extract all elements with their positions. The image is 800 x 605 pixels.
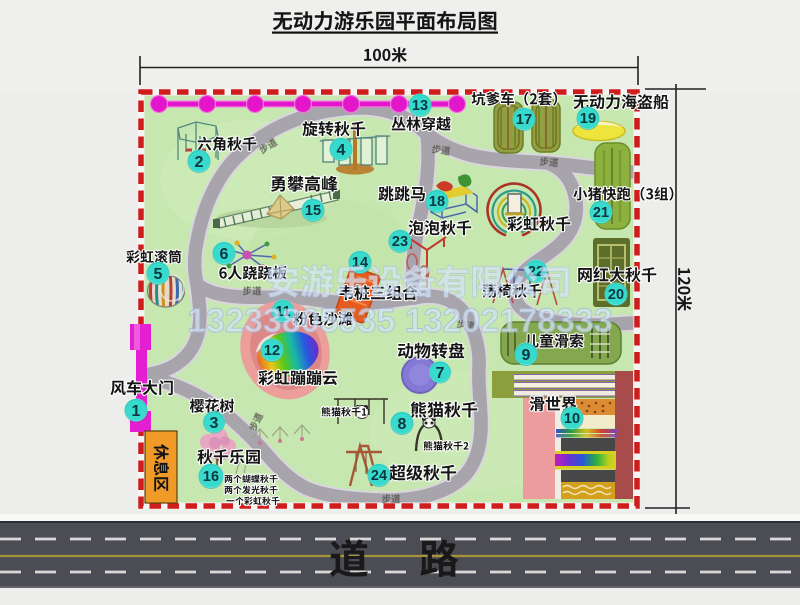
svg-text:18: 18 <box>429 194 445 210</box>
svg-text:19: 19 <box>580 111 596 127</box>
svg-text:7: 7 <box>436 365 445 382</box>
svg-text:12: 12 <box>264 343 280 359</box>
svg-text:5: 5 <box>154 266 163 283</box>
svg-text:9: 9 <box>522 347 531 364</box>
svg-text:20: 20 <box>608 287 624 303</box>
svg-text:13: 13 <box>412 98 428 114</box>
svg-text:4: 4 <box>337 142 346 159</box>
svg-text:2: 2 <box>195 154 204 171</box>
svg-text:10: 10 <box>564 411 580 427</box>
svg-text:1: 1 <box>132 403 141 420</box>
svg-text:15: 15 <box>305 203 321 219</box>
svg-text:23: 23 <box>392 234 408 250</box>
svg-text:24: 24 <box>371 468 387 484</box>
svg-text:13233805535 13202178333: 13233805535 13202178333 <box>187 302 612 340</box>
svg-text:6: 6 <box>220 246 229 263</box>
svg-text:21: 21 <box>593 205 609 221</box>
svg-text:17: 17 <box>516 112 532 128</box>
svg-text:8: 8 <box>398 416 407 433</box>
svg-text:3: 3 <box>210 415 219 432</box>
svg-text:16: 16 <box>203 469 219 485</box>
